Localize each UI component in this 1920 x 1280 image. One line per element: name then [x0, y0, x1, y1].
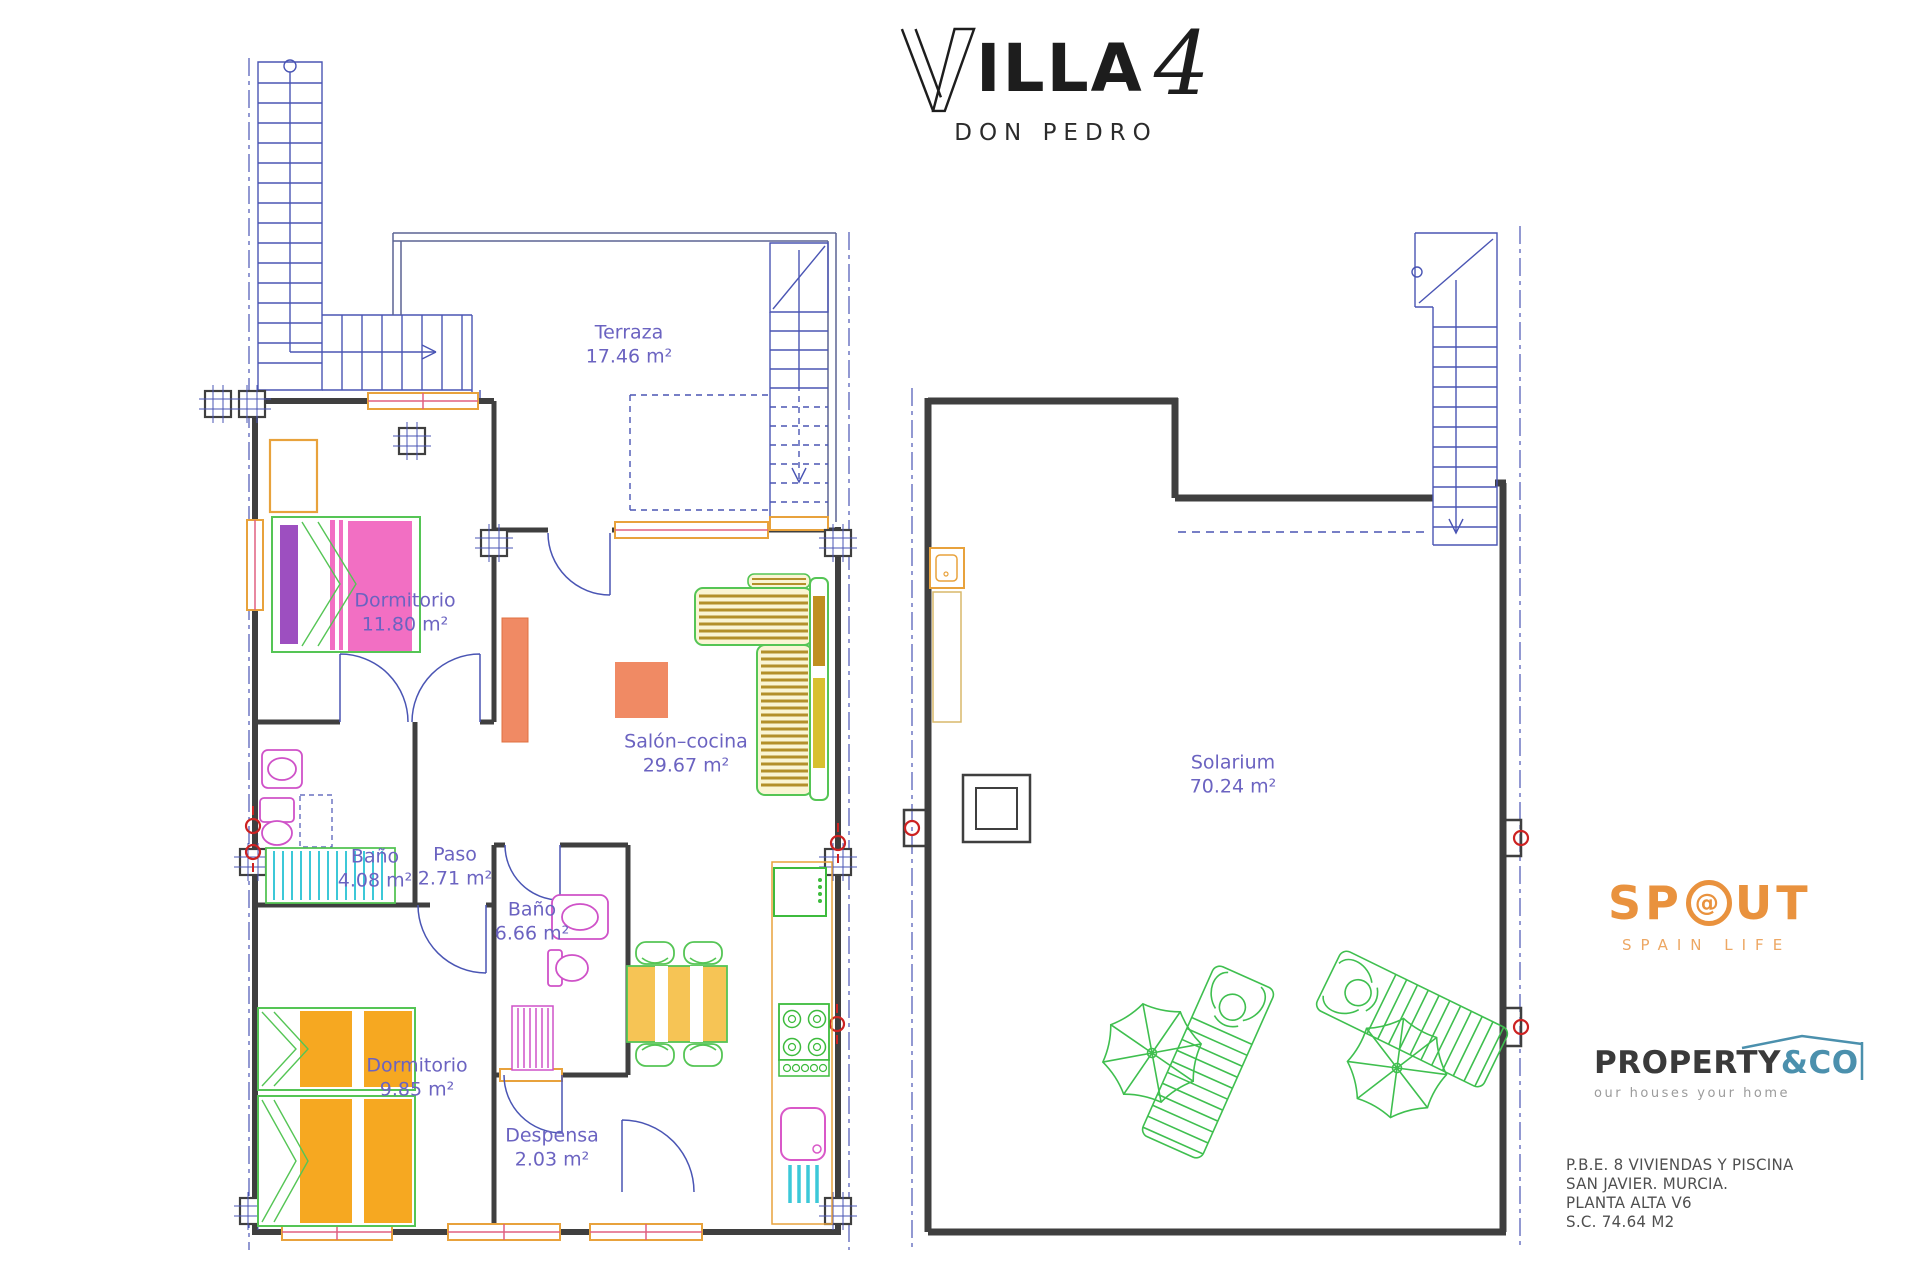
- villa-v-glyph: [898, 22, 976, 116]
- room-label-dormitorio-1: Dormitorio 11.80 m²: [354, 589, 455, 638]
- solarium-cabinet: [933, 592, 961, 722]
- room-label-dormitorio-2: Dormitorio 9.85 m²: [366, 1054, 467, 1103]
- dining-set: [627, 942, 727, 1066]
- room-label-solarium: Solarium 70.24 m²: [1190, 751, 1277, 800]
- room-label-salon-cocina: Salón–cocina 29.67 m²: [624, 730, 748, 779]
- villa-number: 4: [1154, 20, 1210, 108]
- room-label-terraza: Terraza 17.46 m²: [586, 321, 673, 370]
- spout-text-left: SP: [1608, 876, 1683, 930]
- coffee-table: [615, 662, 668, 718]
- spout-text-right: UT: [1735, 876, 1812, 930]
- parasol-1: [1097, 998, 1207, 1108]
- room-label-bano-1: Baño 4.08 m²: [338, 845, 412, 894]
- spout-subtitle: SPAIN LIFE: [1622, 936, 1812, 954]
- project-info-line: S.C. 74.64 M2: [1566, 1212, 1794, 1231]
- dishwasher: [790, 1165, 817, 1203]
- solarium-markers: [904, 810, 1528, 1046]
- project-info-line: SAN JAVIER. MURCIA.: [1566, 1174, 1794, 1193]
- towel-radiator: [512, 1006, 553, 1070]
- project-info-line: P.B.E. 8 VIVIENDAS Y PISCINA: [1566, 1155, 1794, 1174]
- sun-lounger-2: [1314, 949, 1510, 1090]
- floor-plan-right: [904, 226, 1528, 1248]
- floor-plan-left: [199, 58, 857, 1250]
- stove: [779, 1004, 829, 1076]
- villa-subtitle: DON PEDRO: [936, 120, 1176, 146]
- project-info-block: P.B.E. 8 VIVIENDAS Y PISCINA SAN JAVIER.…: [1566, 1155, 1794, 1231]
- kitchen-sink: [781, 1108, 825, 1160]
- fridge: [774, 868, 826, 916]
- bathroom1-fixtures: [260, 750, 332, 847]
- room-label-paso: Paso 2.71 m²: [418, 843, 492, 892]
- sideboard: [502, 618, 528, 742]
- twin-bed-2: [258, 1096, 415, 1226]
- property-co-logo: PROPERTY&CO our houses your home: [1594, 1034, 1859, 1101]
- roof-line-icon: [1740, 1034, 1870, 1080]
- solarium-sink-unit: [930, 548, 964, 588]
- property-co-tagline: our houses your home: [1594, 1086, 1859, 1101]
- spout-swirl-icon: @: [1686, 880, 1732, 926]
- floorplan-sheet: Terraza 17.46 m² Dormitorio 11.80 m² Bañ…: [0, 0, 1920, 1280]
- room-label-despensa: Despensa 2.03 m²: [505, 1124, 599, 1173]
- project-info-line: PLANTA ALTA V6: [1566, 1193, 1794, 1212]
- room-label-bano-2: Baño 6.66 m²: [495, 898, 569, 947]
- chimney-shaft: [963, 775, 1030, 842]
- wardrobe: [270, 440, 317, 512]
- parasol-2: [1334, 1005, 1460, 1131]
- villa-logo: ILLA 4 DON PEDRO: [898, 22, 1228, 146]
- villa-wordmark: ILLA: [976, 36, 1144, 102]
- terrace-staircase: [630, 243, 828, 517]
- exterior-staircase: [258, 60, 480, 401]
- spout-logo: SP @ UT SPAIN LIFE: [1608, 876, 1812, 954]
- sun-lounger-1: [1140, 964, 1276, 1161]
